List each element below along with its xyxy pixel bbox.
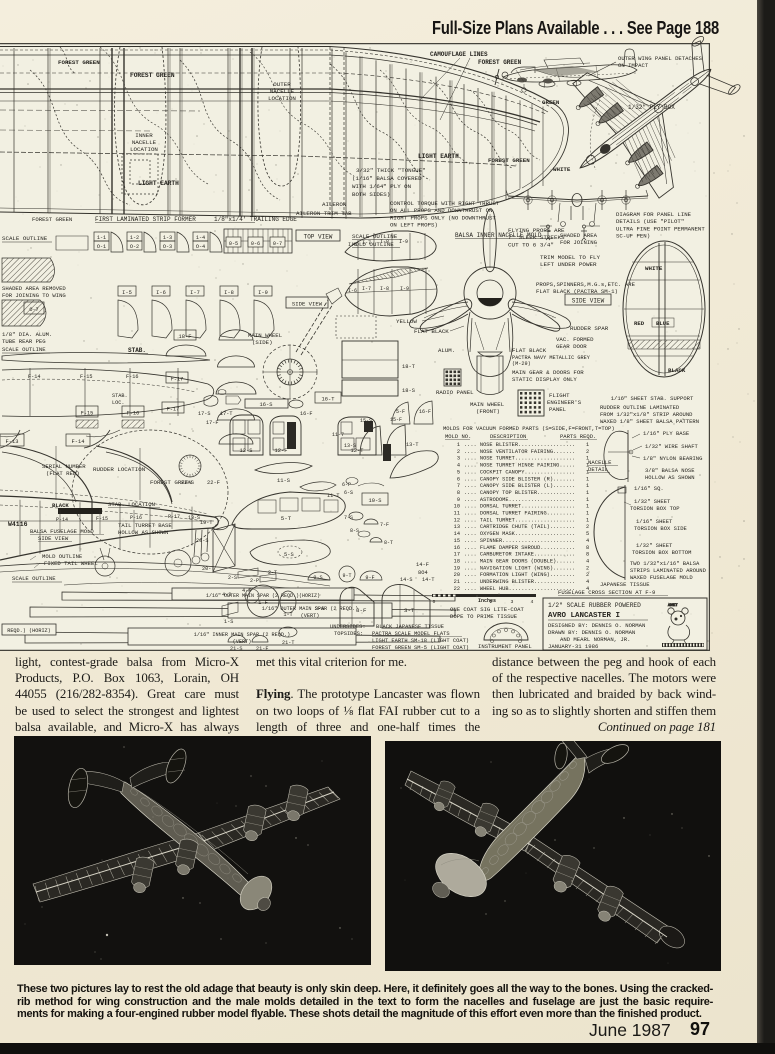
svg-text:SC-UF PEN): SC-UF PEN) [616, 233, 650, 240]
svg-text:18-T: 18-T [402, 364, 416, 370]
svg-text:FOR JOINING: FOR JOINING [560, 239, 598, 246]
svg-text:INNER: INNER [135, 132, 153, 139]
svg-text:4: 4 [586, 538, 589, 544]
svg-text:O-3: O-3 [163, 244, 172, 250]
svg-text:LIGHT EARTH: LIGHT EARTH [418, 153, 459, 160]
svg-text:.... OXYGEN MASK..............: .... OXYGEN MASK................... [464, 531, 575, 537]
svg-text:I-9: I-9 [258, 290, 268, 296]
svg-text:SIDE VIEW: SIDE VIEW [572, 298, 605, 305]
svg-text:I-8: I-8 [380, 286, 389, 292]
svg-text:1/16" PLY BASE: 1/16" PLY BASE [643, 430, 690, 437]
svg-text:5-T: 5-T [281, 515, 292, 522]
svg-text:(FLAT RED): (FLAT RED) [46, 470, 80, 477]
svg-text:4: 4 [586, 558, 589, 564]
svg-text:22-S: 22-S [181, 480, 194, 486]
svg-text:11-7: 11-7 [332, 432, 344, 438]
svg-text:HOLLOW AS SHOWN: HOLLOW AS SHOWN [118, 529, 168, 536]
svg-text:1/8" NYLON BEARING: 1/8" NYLON BEARING [643, 455, 702, 462]
svg-text:.... NAVIGATION LIGHT (WING)..: .... NAVIGATION LIGHT (WING)....... [464, 565, 575, 571]
svg-text:16: 16 [454, 545, 460, 551]
svg-text:AND MEARL NORMAN, JR.: AND MEARL NORMAN, JR. [560, 636, 631, 643]
svg-text:MOLD OUTLINE: MOLD OUTLINE [352, 241, 394, 248]
svg-text:P-17: P-17 [168, 514, 180, 520]
svg-text:FIRST LAMINATED STRIP FORMER: FIRST LAMINATED STRIP FORMER [95, 216, 196, 223]
svg-text:ONE COAT SIG LITE-COAT: ONE COAT SIG LITE-COAT [450, 606, 524, 613]
svg-text:17-S: 17-S [198, 411, 210, 417]
svg-text:5: 5 [457, 469, 460, 475]
svg-text:TORSION BOX TOP: TORSION BOX TOP [630, 505, 680, 512]
svg-text:SCALE OUTLINE: SCALE OUTLINE [2, 235, 48, 242]
svg-text:FUSELAGE CROSS SECTION AT F-9: FUSELAGE CROSS SECTION AT F-9 [558, 589, 655, 596]
svg-text:1: 1 [586, 483, 589, 489]
svg-text:20-S: 20-S [196, 538, 208, 544]
svg-text:1/2" SCALE RUBBER POWERED: 1/2" SCALE RUBBER POWERED [548, 602, 641, 609]
svg-text:0: 0 [433, 599, 436, 605]
svg-text:LIGHT EARTH SM-18 (LIGHT COAT): LIGHT EARTH SM-18 (LIGHT COAT) [372, 638, 469, 644]
svg-text:WAXED 1/8" SHEET BALSA PATTERN: WAXED 1/8" SHEET BALSA PATTERN [600, 418, 699, 425]
svg-text:MOLDS FOR VACUUM FORMED PARTS: MOLDS FOR VACUUM FORMED PARTS (S=SIDE,F=… [443, 425, 615, 432]
svg-text:1/16" SQ.: 1/16" SQ. [634, 485, 664, 492]
svg-text:O-1: O-1 [97, 244, 106, 250]
svg-text:5-S: 5-S [284, 552, 294, 558]
svg-text:1: 1 [586, 490, 589, 496]
svg-text:Inches: Inches [478, 598, 496, 604]
svg-text:8: 8 [586, 545, 589, 551]
svg-text:PACTRA SCALE MODEL FLATS: PACTRA SCALE MODEL FLATS [372, 631, 450, 637]
svg-text:CAMOUFLAGE LINES: CAMOUFLAGE LINES [430, 51, 488, 58]
svg-text:ULTRA FINE POINT PERMANENT: ULTRA FINE POINT PERMANENT [616, 225, 705, 232]
svg-text:ON ALL PROPS AND DOWNTHRUST ON: ON ALL PROPS AND DOWNTHRUST ON [390, 207, 492, 214]
svg-text:18-S: 18-S [402, 388, 415, 394]
svg-text:.... CANOPY TOP BLISTER.......: .... CANOPY TOP BLISTER............ [464, 490, 575, 496]
svg-text:LOCATION: LOCATION [268, 95, 296, 102]
svg-text:21-T: 21-T [282, 640, 294, 646]
svg-text:TUBE REAR PEG: TUBE REAR PEG [2, 338, 46, 345]
svg-text:WHITE: WHITE [645, 265, 663, 272]
svg-text:I-6: I-6 [348, 288, 357, 294]
svg-text:PROPS,SPINNERS,M.G.s,ETC. ARE: PROPS,SPINNERS,M.G.s,ETC. ARE [536, 281, 636, 288]
svg-text:1: 1 [586, 511, 589, 517]
svg-text:FOREST GREEN SM-5 (LIGHT COAT): FOREST GREEN SM-5 (LIGHT COAT) [372, 645, 469, 651]
svg-text:13-T: 13-T [406, 442, 418, 448]
svg-text:SCALE OUTLINE: SCALE OUTLINE [2, 346, 46, 353]
svg-text:13-S: 13-S [344, 443, 356, 449]
svg-text:8: 8 [586, 552, 589, 558]
svg-text:1/32" SHEET: 1/32" SHEET [636, 542, 673, 549]
svg-text:2: 2 [586, 572, 589, 578]
svg-text:DRAWN BY: DENNIS O. NORMAN: DRAWN BY: DENNIS O. NORMAN [548, 629, 635, 636]
svg-text:16-S: 16-S [260, 402, 273, 408]
svg-text:TORSION BOX BOTTOM: TORSION BOX BOTTOM [632, 549, 691, 556]
svg-text:STAB.: STAB. [112, 393, 128, 399]
svg-text:DETAILS (USE "PILOT": DETAILS (USE "PILOT" [616, 218, 684, 225]
svg-text:JAPANESE TISSUE: JAPANESE TISSUE [600, 581, 650, 588]
svg-text:F-16: F-16 [127, 411, 139, 417]
svg-text:BALSA FUSELAGE MOLD: BALSA FUSELAGE MOLD [30, 528, 94, 535]
svg-text:WAXED FUSELAGE MOLD: WAXED FUSELAGE MOLD [630, 574, 693, 581]
svg-text:P-16: P-16 [130, 515, 142, 521]
svg-text:1/16" SHEET STAB. SUPPORT: 1/16" SHEET STAB. SUPPORT [611, 395, 694, 402]
svg-text:22-F: 22-F [207, 480, 220, 486]
svg-text:ALUM.: ALUM. [438, 347, 455, 354]
svg-text:20-T: 20-T [202, 566, 214, 572]
svg-text:FOR JOINING TO WING: FOR JOINING TO WING [2, 292, 66, 299]
svg-text:9-T: 9-T [342, 573, 351, 579]
svg-text:INSTRUMENT PANEL: INSTRUMENT PANEL [478, 643, 532, 650]
svg-text:BLACK: BLACK [668, 367, 686, 374]
svg-text:11: 11 [454, 511, 460, 517]
svg-text:RED: RED [634, 320, 645, 327]
svg-text:1: 1 [586, 504, 589, 510]
svg-text:2: 2 [586, 524, 589, 530]
svg-text:NACELLE: NACELLE [132, 139, 157, 146]
svg-text:BOTH SIDES): BOTH SIDES) [352, 191, 390, 198]
svg-text:TWO 1/32"x1/16" BALSA: TWO 1/32"x1/16" BALSA [630, 560, 700, 567]
svg-text:12-S: 12-S [240, 448, 253, 454]
svg-text:2-S: 2-S [228, 575, 237, 581]
svg-text:1-4: 1-4 [196, 235, 205, 241]
svg-text:3/8" BALSA NOSE: 3/8" BALSA NOSE [645, 467, 695, 474]
svg-text:1/8" DIA. ALUM.: 1/8" DIA. ALUM. [2, 331, 52, 338]
svg-text:3: 3 [511, 599, 514, 605]
svg-text:.... SPINNER..................: .... SPINNER....................... [464, 538, 575, 544]
svg-text:9-S: 9-S [313, 575, 322, 581]
svg-text:11-S: 11-S [277, 478, 290, 484]
svg-text:ON LEFT PROPS): ON LEFT PROPS) [390, 222, 438, 229]
svg-text:YELLOW: YELLOW [396, 318, 417, 325]
svg-text:FOREST GREEN: FOREST GREEN [130, 72, 175, 79]
svg-text:4: 4 [531, 599, 534, 605]
svg-text:4-S: 4-S [222, 592, 231, 598]
svg-text:19-T: 19-T [200, 520, 212, 526]
svg-text:FOREST GREEN: FOREST GREEN [478, 59, 522, 66]
svg-text:SIDE VIEW: SIDE VIEW [38, 535, 69, 542]
svg-text:P-14: P-14 [56, 517, 68, 523]
svg-text:PARTS REQD.: PARTS REQD. [560, 433, 596, 440]
svg-text:FOREST GREEN: FOREST GREEN [32, 216, 72, 223]
svg-text:1/32" WIRE SHAFT: 1/32" WIRE SHAFT [645, 443, 699, 450]
svg-text:SERIAL NUMBER: SERIAL NUMBER [42, 463, 86, 470]
svg-text:16-F: 16-F [300, 411, 312, 417]
svg-text:.... FORMATION LIGHT (WING)...: .... FORMATION LIGHT (WING)........ [464, 572, 575, 578]
svg-text:HOLLOW AS SHOWN: HOLLOW AS SHOWN [645, 474, 695, 481]
svg-text:BLACK JAPANESE TISSUE: BLACK JAPANESE TISSUE [376, 624, 444, 630]
svg-text:TRIM MODEL TO FLY: TRIM MODEL TO FLY [540, 254, 601, 261]
svg-text:.... NOSE VENTILATOR FAIRING..: .... NOSE VENTILATOR FAIRING....... [464, 449, 575, 455]
svg-text:13-S: 13-S [188, 515, 200, 521]
svg-text:3/32" THICK "TONGUE": 3/32" THICK "TONGUE" [356, 167, 426, 174]
svg-text:(1/16" BALSA COVERED: (1/16" BALSA COVERED [352, 175, 422, 182]
svg-text:1: 1 [586, 442, 589, 448]
svg-text:1/32" SHEET: 1/32" SHEET [634, 498, 671, 505]
svg-text:.... NOSE TURRET..............: .... NOSE TURRET................... [464, 456, 575, 462]
svg-text:.... ASTRODOME................: .... ASTRODOME..................... [464, 497, 575, 503]
svg-text:RADIO PANEL: RADIO PANEL [436, 389, 474, 396]
svg-text:14-T: 14-T [422, 577, 434, 583]
svg-text:16-F: 16-F [419, 409, 431, 415]
svg-text:1/16" OUTER MAIN SPAR (2 REQD.: 1/16" OUTER MAIN SPAR (2 REQD.) [262, 606, 359, 612]
svg-text:.... DORSAL TURRET............: .... DORSAL TURRET................. [464, 504, 575, 510]
svg-text:MOLD NO.: MOLD NO. [445, 433, 471, 440]
svg-text:14-S: 14-S [400, 577, 412, 583]
svg-text:OUTER: OUTER [273, 81, 291, 88]
svg-text:.... CARBURETOR INTAKE........: .... CARBURETOR INTAKE............. [464, 552, 575, 558]
svg-text:1-T: 1-T [283, 612, 292, 618]
svg-text:17-T: 17-T [220, 411, 232, 417]
svg-text:17-F: 17-F [206, 420, 218, 426]
svg-text:DIAGRAM FOR PANEL LINE: DIAGRAM FOR PANEL LINE [616, 211, 692, 218]
svg-text:CONTROL TORQUE WITH RIGHT THRU: CONTROL TORQUE WITH RIGHT THRUST [390, 200, 500, 207]
svg-text:1/8"x1/4' TRAILING EDGE: 1/8"x1/4' TRAILING EDGE [214, 216, 297, 223]
svg-text:STRIPS LAMINATED AROUND: STRIPS LAMINATED AROUND [630, 567, 707, 574]
svg-text:.... CARTRIDGE CHUTE (TAIL)...: .... CARTRIDGE CHUTE (TAIL)........ [464, 524, 575, 530]
svg-text:O-4: O-4 [196, 244, 205, 250]
svg-text:JANUARY-31 1986: JANUARY-31 1986 [548, 643, 598, 650]
svg-text:REQD.) (HORIZ): REQD.) (HORIZ) [7, 628, 51, 634]
svg-text:(SIDE): (SIDE) [252, 339, 272, 346]
svg-text:4: 4 [457, 463, 460, 469]
svg-text:(VERT): (VERT) [301, 613, 320, 619]
svg-text:14: 14 [454, 531, 460, 537]
svg-text:8-S: 8-S [350, 528, 359, 534]
svg-text:VAC. FORMED: VAC. FORMED [556, 336, 594, 343]
svg-text:6: 6 [457, 476, 460, 482]
svg-text:F-16: F-16 [126, 374, 138, 380]
svg-text:.... TAIL TURRET..............: .... TAIL TURRET................... [464, 517, 575, 523]
svg-text:1: 1 [457, 442, 460, 448]
svg-text:TOPSIDES:: TOPSIDES: [334, 631, 363, 637]
svg-text:FLIGHT: FLIGHT [549, 392, 570, 399]
svg-text:1/16" INNER MAIN SPAR (2 REQD.: 1/16" INNER MAIN SPAR (2 REQD.) [194, 632, 291, 638]
svg-text:F-17: F-17 [171, 377, 183, 383]
svg-text:AILERON TRIM TAB: AILERON TRIM TAB [296, 210, 352, 217]
svg-text:STAB. LOCATION: STAB. LOCATION [108, 501, 155, 508]
svg-text:TAIL TURRET BASE: TAIL TURRET BASE [118, 522, 172, 529]
svg-text:RUDDER LOCATION: RUDDER LOCATION [93, 466, 146, 473]
svg-text:13: 13 [454, 524, 460, 530]
svg-text:I-9: I-9 [400, 286, 409, 292]
svg-text:1: 1 [586, 517, 589, 523]
svg-text:PANEL: PANEL [549, 406, 567, 413]
svg-text:3-T: 3-T [404, 607, 415, 614]
svg-text:UNDERSIDES:: UNDERSIDES: [330, 624, 366, 630]
svg-text:MOLD OUTLINE: MOLD OUTLINE [42, 553, 83, 560]
svg-text:1/16" SHEET: 1/16" SHEET [636, 518, 673, 525]
svg-text:O-7: O-7 [29, 307, 38, 313]
svg-text:1-1: 1-1 [97, 235, 106, 241]
svg-text:7: 7 [457, 483, 460, 489]
svg-text:BALSA INNER NACELLE MOLD: BALSA INNER NACELLE MOLD [455, 232, 542, 239]
svg-text:2-P: 2-P [250, 578, 259, 584]
svg-text:CUT TO 6 3/4": CUT TO 6 3/4" [508, 241, 554, 248]
svg-text:TORSION BOX SIDE: TORSION BOX SIDE [634, 525, 688, 532]
svg-text:4-F: 4-F [242, 588, 251, 594]
svg-text:SCALE OUTLINE: SCALE OUTLINE [352, 233, 398, 240]
svg-text:15-S: 15-S [360, 418, 372, 424]
svg-text:21-F: 21-F [256, 646, 268, 652]
svg-text:21: 21 [454, 579, 460, 585]
svg-text:.... CANOPY SIDE BLISTER (R)..: .... CANOPY SIDE BLISTER (R)....... [464, 476, 575, 482]
svg-text:.... UNDERWING BLISTER........: .... UNDERWING BLISTER............. [464, 579, 575, 585]
svg-text:18-F: 18-F [179, 334, 192, 340]
svg-text:DESIGNED BY: DENNIS O. NORMAN: DESIGNED BY: DENNIS O. NORMAN [548, 622, 645, 629]
svg-text:0-5: 0-5 [229, 241, 238, 247]
svg-text:(M-29): (M-29) [512, 361, 531, 367]
svg-text:FROM 1/32"x1/8" STRIP AROUND: FROM 1/32"x1/8" STRIP AROUND [600, 411, 693, 418]
svg-text:12-F: 12-F [275, 448, 288, 454]
svg-text:LOCATION: LOCATION [130, 146, 158, 153]
svg-text:8: 8 [457, 490, 460, 496]
svg-text:FIXED TAIL WHEEL: FIXED TAIL WHEEL [44, 560, 98, 567]
svg-text:SHADED AREA: SHADED AREA [560, 232, 598, 239]
svg-text:AVRO LANCASTER I: AVRO LANCASTER I [548, 612, 620, 620]
svg-text:15: 15 [454, 538, 460, 544]
svg-text:W4116: W4116 [8, 521, 28, 528]
svg-text:2: 2 [586, 449, 589, 455]
svg-text:.... DORSAL TURRET FAIRING....: .... DORSAL TURRET FAIRING......... [464, 511, 575, 517]
svg-text:0-6: 0-6 [251, 241, 260, 247]
svg-text:DETAIL: DETAIL [588, 466, 608, 473]
svg-text:5: 5 [586, 531, 589, 537]
svg-text:14-F: 14-F [416, 562, 429, 568]
svg-text:WITH 1/64" PLY ON: WITH 1/64" PLY ON [352, 183, 412, 190]
svg-text:.... FLAME DAMPER SHROUD......: .... FLAME DAMPER SHROUD........... [464, 545, 575, 551]
svg-text:LIGHT EARTH: LIGHT EARTH [138, 180, 179, 187]
svg-text:1-2: 1-2 [130, 235, 139, 241]
svg-text:MAIN WHEEL: MAIN WHEEL [470, 401, 505, 408]
svg-text:SCALE OUTLINE: SCALE OUTLINE [12, 575, 56, 582]
svg-text:3: 3 [457, 456, 460, 462]
svg-text:17: 17 [454, 552, 460, 558]
svg-text:I-7: I-7 [190, 290, 200, 296]
svg-text:SIDE VIEW: SIDE VIEW [292, 301, 323, 308]
svg-text:FLAT BLACK: FLAT BLACK [414, 328, 449, 335]
svg-text:I-8: I-8 [224, 290, 234, 296]
svg-text:WHITE: WHITE [553, 166, 571, 173]
svg-text:F-14: F-14 [28, 374, 40, 380]
svg-text:3-S: 3-S [315, 606, 324, 612]
svg-text:1-F: 1-F [258, 600, 268, 606]
svg-text:ENGINEER'S: ENGINEER'S [547, 399, 582, 406]
svg-text:1: 1 [586, 497, 589, 503]
svg-text:RUDDER SPAR: RUDDER SPAR [570, 325, 609, 332]
svg-text:RIGHT PROPS ONLY (NO DOWNTHRUS: RIGHT PROPS ONLY (NO DOWNTHRUST [390, 214, 496, 221]
svg-text:18: 18 [454, 558, 460, 564]
svg-text:8O4: 8O4 [418, 570, 428, 576]
svg-text:DESCRIPTION: DESCRIPTION [490, 433, 526, 440]
svg-text:16-T: 16-T [322, 397, 336, 403]
svg-text:NACELLE: NACELLE [588, 459, 612, 466]
svg-text:ADMIT: ADMIT [668, 603, 678, 607]
svg-text:F-17: F-17 [167, 407, 179, 413]
svg-text:LOC.: LOC. [112, 400, 124, 406]
svg-text:TOP VIEW: TOP VIEW [304, 234, 333, 241]
svg-text:I-6: I-6 [156, 290, 166, 296]
svg-text:8-T: 8-T [384, 540, 393, 546]
svg-text:.... NOSE TURRET HINGE FAIRING: .... NOSE TURRET HINGE FAIRING..... [464, 463, 575, 469]
svg-text:NACELLE: NACELLE [270, 88, 295, 95]
svg-text:FOREST GREEN: FOREST GREEN [488, 157, 530, 164]
svg-text:20: 20 [454, 572, 460, 578]
svg-text:FLAT BLACK: FLAT BLACK [512, 347, 547, 354]
svg-text:I-9: I-9 [399, 239, 408, 245]
svg-text:STATIC DISPLAY ONLY: STATIC DISPLAY ONLY [512, 376, 577, 383]
svg-text:0-7: 0-7 [273, 241, 282, 247]
svg-text:1-S: 1-S [224, 619, 233, 625]
svg-text:7-F: 7-F [380, 522, 389, 528]
svg-text:22: 22 [454, 586, 460, 592]
svg-text:1: 1 [586, 476, 589, 482]
svg-text:10: 10 [454, 504, 460, 510]
svg-text:(FRONT): (FRONT) [476, 408, 500, 415]
svg-text:.... MAIN GEAR DOORS (DOUBLE).: .... MAIN GEAR DOORS (DOUBLE)...... [464, 558, 575, 564]
svg-text:O-2: O-2 [130, 244, 139, 250]
svg-text:MAIN WHEEL: MAIN WHEEL [248, 332, 283, 339]
svg-text:I-7: I-7 [362, 286, 371, 292]
svg-text:4: 4 [586, 579, 589, 585]
svg-text:21-S: 21-S [230, 646, 242, 652]
svg-text:.... COCKPIT CANOPY...........: .... COCKPIT CANOPY................ [464, 469, 575, 475]
svg-text:SHADED AREA REMOVED: SHADED AREA REMOVED [2, 285, 66, 292]
svg-text:GREEN: GREEN [542, 99, 560, 106]
svg-text:I-5: I-5 [122, 290, 132, 296]
svg-text:1-3: 1-3 [163, 235, 172, 241]
svg-text:F-15: F-15 [96, 516, 108, 522]
svg-text:2-T: 2-T [268, 570, 277, 576]
svg-text:2: 2 [457, 449, 460, 455]
svg-text:12: 12 [454, 517, 460, 523]
svg-text:STAB.: STAB. [128, 347, 146, 354]
svg-text:MAIN GEAR & DOORS FOR: MAIN GEAR & DOORS FOR [512, 369, 584, 376]
svg-text:BLUE: BLUE [656, 320, 670, 327]
svg-text:10-S: 10-S [369, 498, 382, 504]
svg-text:6-P: 6-P [342, 482, 351, 488]
svg-text:RUDDER OUTLINE LAMINATED: RUDDER OUTLINE LAMINATED [600, 404, 680, 411]
svg-text:.... NOSE BLISTER.............: .... NOSE BLISTER.................. [464, 442, 575, 448]
svg-text:AILERON: AILERON [322, 201, 347, 208]
svg-text:19: 19 [454, 565, 460, 571]
svg-text:OUTER WING PANEL DETACHES: OUTER WING PANEL DETACHES [618, 55, 703, 62]
svg-text:F-15: F-15 [81, 411, 93, 417]
svg-text:LEFT UNDER POWER: LEFT UNDER POWER [540, 261, 597, 268]
svg-text:F-15: F-15 [80, 374, 92, 380]
svg-text:7-S: 7-S [344, 515, 353, 521]
svg-text:9: 9 [457, 497, 460, 503]
svg-text:GEAR DOOR: GEAR DOOR [556, 343, 587, 350]
svg-text:BLACK: BLACK [52, 502, 69, 509]
svg-text:5-F: 5-F [396, 409, 405, 415]
svg-text:DOPE TO PRIME TISSUE: DOPE TO PRIME TISSUE [450, 613, 518, 620]
svg-text:9-F: 9-F [365, 575, 374, 581]
svg-text:F-14: F-14 [72, 439, 85, 445]
svg-text:.... CANOPY SIDE BLISTER (L)..: .... CANOPY SIDE BLISTER (L)....... [464, 483, 575, 489]
svg-text:2: 2 [586, 565, 589, 571]
svg-text:FOREST GREEN: FOREST GREEN [58, 59, 100, 66]
